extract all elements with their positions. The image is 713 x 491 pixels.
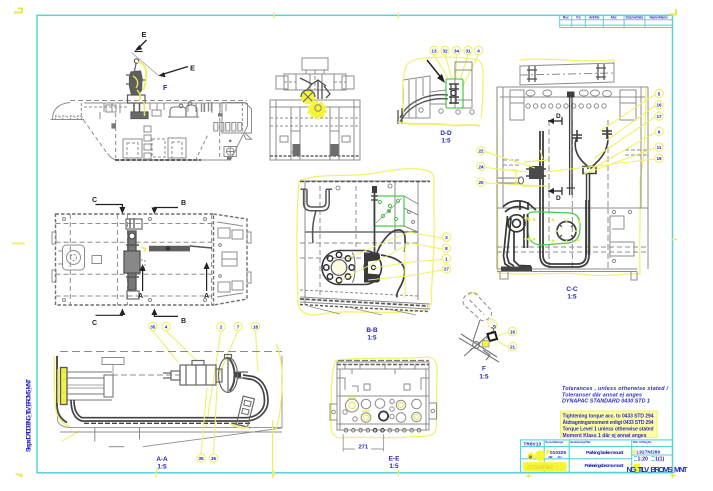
svg-text:E: E [142, 30, 147, 39]
svg-text:AH: AH [558, 455, 562, 459]
svg-text:18: 18 [253, 324, 259, 329]
svg-text:9: 9 [658, 129, 661, 134]
svg-text:D: D [556, 195, 561, 202]
svg-text:F: F [482, 366, 486, 373]
svg-text:1:5: 1:5 [367, 335, 377, 342]
svg-text:13: 13 [431, 48, 437, 53]
svg-text:E-E: E-E [389, 456, 400, 463]
svg-text:C: C [92, 320, 97, 327]
svg-text:F: F [163, 85, 168, 92]
svg-text:35: 35 [150, 324, 156, 329]
svg-text:Tolerances , unless otherwise: Tolerances , unless otherwise stated / [562, 386, 669, 392]
svg-text:B: B [181, 318, 186, 325]
svg-text:1: 1 [445, 256, 448, 261]
svg-text:DYNAPAC: DYNAPAC [527, 465, 553, 471]
svg-text:17: 17 [656, 114, 662, 119]
svg-text:A: A [204, 293, 209, 300]
svg-text:19: 19 [656, 156, 662, 161]
svg-text:20: 20 [478, 180, 484, 185]
svg-text:⊘: ⊘ [529, 455, 533, 460]
svg-text:3: 3 [445, 235, 448, 240]
svg-text:1:5: 1:5 [479, 374, 489, 381]
svg-text:271: 271 [358, 444, 368, 450]
svg-text:36: 36 [211, 456, 217, 461]
svg-text:22: 22 [478, 149, 484, 154]
svg-text:4: 4 [477, 48, 480, 53]
svg-text:Parking brake mount: Parking brake mount [586, 450, 624, 456]
svg-text:Rev: Rev [563, 16, 569, 20]
svg-text:Benämning/Title: Benämning/Title [571, 440, 592, 444]
svg-text:1:5: 1:5 [441, 138, 451, 145]
svg-text:Ritn nr/Dwg No: Ritn nr/Dwg No [633, 440, 652, 444]
svg-text:Datum/Date: Datum/Date [626, 16, 644, 20]
svg-text:Torque Level 1 unless otherwis: Torque Level 1 unless otherwise stated [563, 427, 654, 433]
svg-text:P.s: P.s [576, 16, 581, 20]
svg-text:1:5: 1:5 [567, 294, 577, 301]
svg-text:NG_TILV_BROMS_MNT: NG_TILV_BROMS_MNT [627, 465, 688, 474]
svg-text:Parkeringsbroms mont: Parkeringsbroms mont [585, 463, 624, 469]
svg-text:35: 35 [198, 456, 204, 461]
svg-text:A-A: A-A [156, 456, 168, 463]
svg-text:Moment Klass 1 där ej annat an: Moment Klass 1 där ej annat anges [563, 433, 647, 439]
svg-text:11: 11 [657, 145, 662, 150]
svg-text:1(1): 1(1) [655, 457, 664, 463]
svg-text:D-D: D-D [440, 130, 452, 137]
svg-text:C: C [92, 197, 97, 204]
svg-text:A: A [138, 293, 143, 300]
svg-text:TR6V13: TR6V13 [524, 442, 542, 448]
svg-text:34: 34 [454, 48, 460, 53]
svg-text:B: B [181, 200, 186, 207]
svg-text:E: E [190, 64, 195, 73]
svg-text:Konstr/Design: Konstr/Design [546, 440, 564, 444]
svg-text:1:5: 1:5 [389, 463, 399, 470]
svg-text:16: 16 [510, 329, 516, 334]
svg-text:B-B: B-B [366, 327, 378, 334]
svg-text:27: 27 [444, 267, 450, 272]
svg-text:2: 2 [220, 324, 223, 329]
svg-text:Tightening torque acc. to 0433: Tightening torque acc. to 0433 STD 294 [563, 414, 654, 420]
svg-text:C-C: C-C [566, 286, 578, 293]
svg-text:8: 8 [445, 246, 448, 251]
svg-text:31: 31 [465, 48, 471, 53]
svg-text:16: 16 [656, 103, 662, 108]
svg-text:Abc: Abc [611, 16, 617, 20]
svg-text:7: 7 [237, 324, 240, 329]
svg-text:DYNAPAC STANDARD 0430 STD 1: DYNAPAC STANDARD 0430 STD 1 [562, 399, 650, 405]
svg-text:Ant/No: Ant/No [589, 16, 599, 20]
svg-text:4: 4 [165, 324, 168, 329]
svg-text:Namn/Name: Namn/Name [649, 16, 668, 20]
svg-text:NB: NB [549, 455, 553, 459]
svg-text:21: 21 [510, 344, 516, 349]
svg-text:Skapad i CADDS5 NG_TILV_BROMS_: Skapad i CADDS5 NG_TILV_BROMS_MNT [26, 379, 33, 452]
svg-text:5: 5 [658, 91, 661, 96]
svg-text:Åtdragningsmoment enligt 0433: Åtdragningsmoment enligt 0433 STD 294 [563, 419, 654, 426]
svg-text:32: 32 [442, 48, 448, 53]
svg-text:1:20: 1:20 [638, 457, 648, 463]
svg-text:L927N/289: L927N/289 [637, 449, 661, 454]
svg-text:1:5: 1:5 [157, 464, 167, 471]
svg-text:D: D [556, 113, 561, 120]
svg-text:24: 24 [478, 164, 484, 169]
